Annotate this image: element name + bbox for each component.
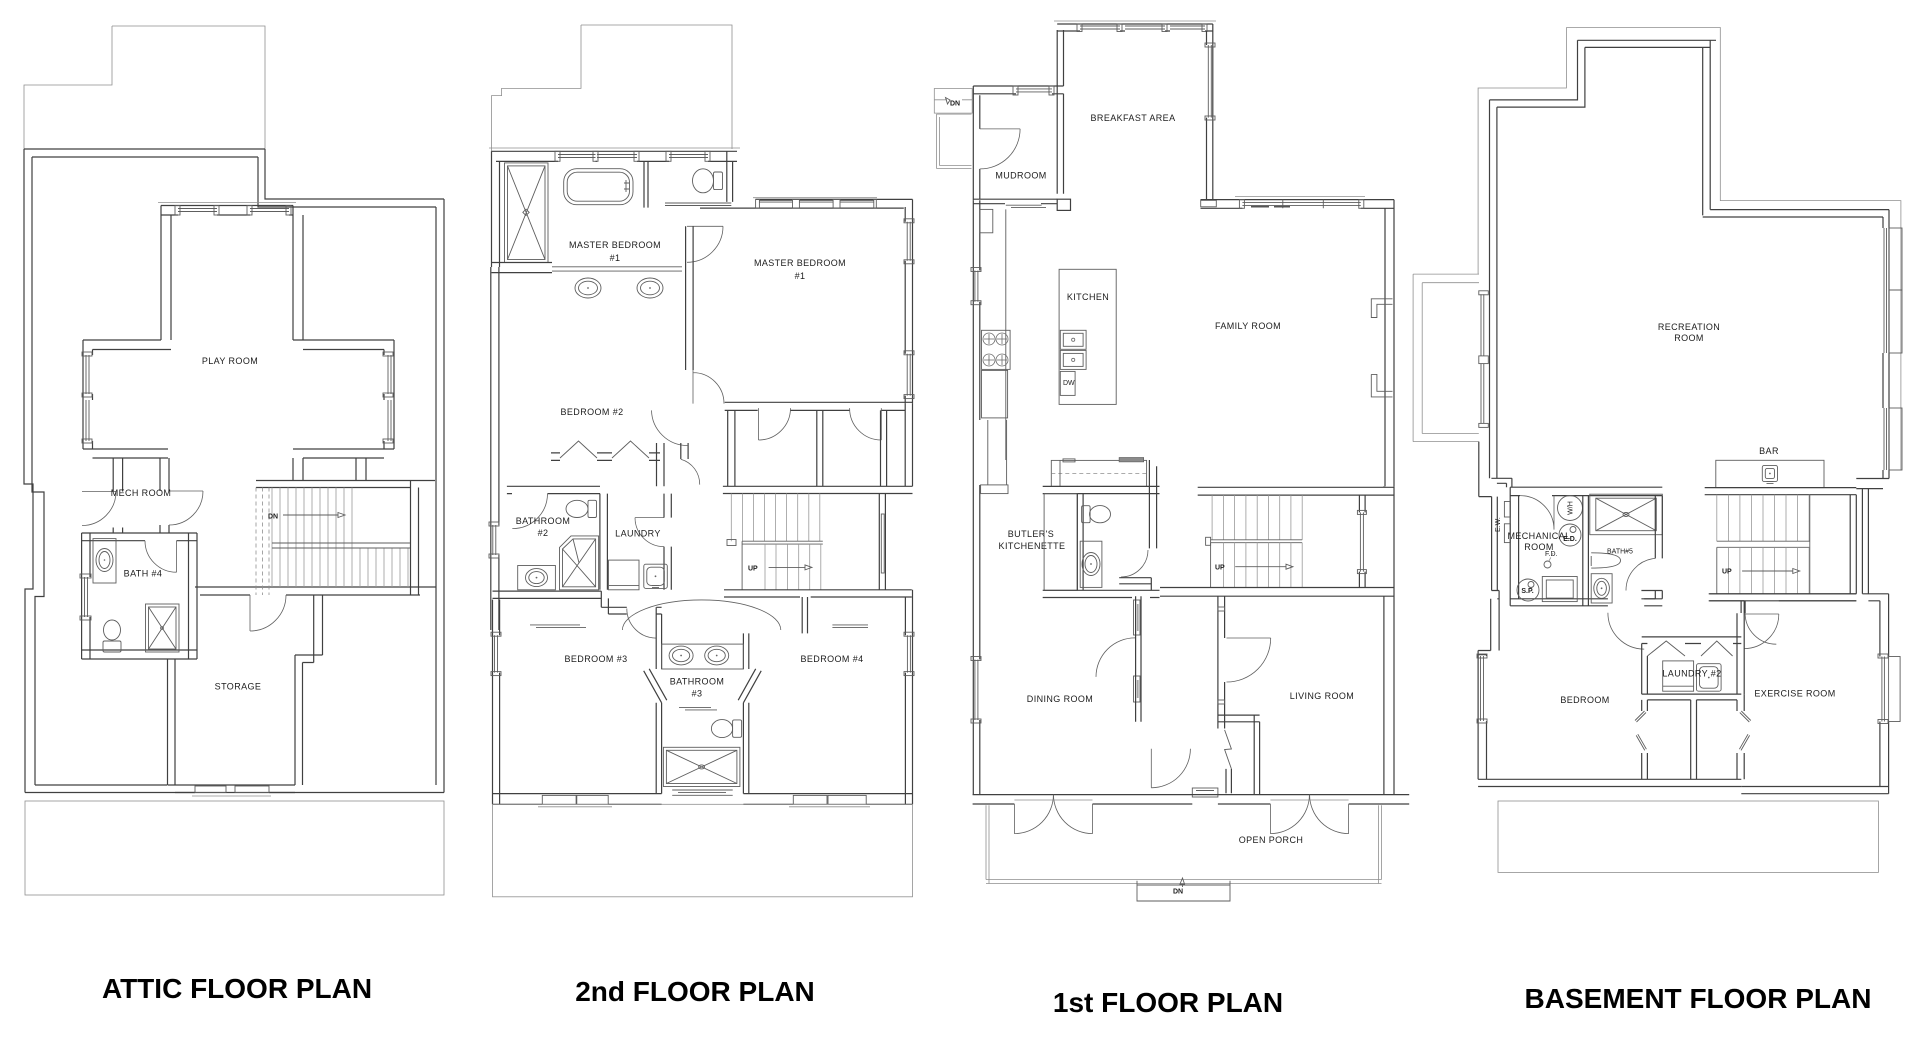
svg-text:DN: DN: [1173, 889, 1183, 896]
svg-text:KITCHENETTE: KITCHENETTE: [999, 541, 1066, 551]
svg-text:RECREATION: RECREATION: [1658, 322, 1720, 332]
svg-text:BEDROOM #2: BEDROOM #2: [560, 407, 623, 417]
svg-text:MASTER BEDROOM: MASTER BEDROOM: [569, 240, 661, 250]
svg-text:STORAGE: STORAGE: [215, 682, 262, 692]
svg-text:1st FLOOR PLAN: 1st FLOOR PLAN: [1053, 987, 1283, 1018]
svg-text:DW: DW: [1063, 380, 1075, 387]
svg-text:MECH ROOM: MECH ROOM: [111, 488, 172, 498]
svg-text:MUDROOM: MUDROOM: [995, 171, 1046, 181]
svg-text:BUTLER'S: BUTLER'S: [1008, 529, 1054, 539]
svg-text:OPEN PORCH: OPEN PORCH: [1239, 835, 1304, 845]
svg-text:S.P.: S.P.: [1521, 588, 1533, 595]
svg-text:PLAY ROOM: PLAY ROOM: [202, 356, 258, 366]
svg-text:2nd FLOOR PLAN: 2nd FLOOR PLAN: [575, 976, 815, 1007]
svg-text:DN: DN: [950, 101, 960, 108]
svg-text:DINING ROOM: DINING ROOM: [1027, 694, 1093, 704]
svg-text:BEDROOM #4: BEDROOM #4: [800, 654, 863, 664]
svg-text:BATHROOM: BATHROOM: [670, 677, 725, 687]
svg-text:BEDROOM: BEDROOM: [1560, 695, 1609, 705]
svg-text:UP: UP: [1215, 565, 1225, 572]
svg-text:#2: #2: [538, 528, 549, 538]
svg-text:F.D.: F.D.: [1545, 551, 1558, 558]
svg-text:FAMILY ROOM: FAMILY ROOM: [1215, 321, 1281, 331]
svg-text:#3: #3: [692, 689, 703, 699]
svg-text:UP: UP: [1722, 569, 1732, 576]
svg-text:LIVING ROOM: LIVING ROOM: [1290, 691, 1354, 701]
svg-text:BATHROOM: BATHROOM: [516, 516, 571, 526]
svg-text:ATTIC FLOOR PLAN: ATTIC FLOOR PLAN: [102, 973, 372, 1004]
svg-text:MECHANICAL: MECHANICAL: [1507, 531, 1570, 541]
svg-text:E.W.: E.W.: [1495, 517, 1502, 532]
svg-text:#1: #1: [795, 271, 806, 281]
svg-text:#1: #1: [610, 253, 621, 263]
svg-text:BAR: BAR: [1759, 446, 1779, 456]
svg-text:EXERCISE ROOM: EXERCISE ROOM: [1754, 689, 1835, 699]
svg-text:LAUNDRY #2: LAUNDRY #2: [1662, 669, 1721, 679]
svg-text:MASTER BEDROOM: MASTER BEDROOM: [754, 258, 846, 268]
svg-text:BASEMENT FLOOR PLAN: BASEMENT FLOOR PLAN: [1525, 983, 1872, 1014]
svg-text:KITCHEN: KITCHEN: [1067, 292, 1109, 302]
svg-text:W/H: W/H: [1568, 501, 1575, 515]
svg-text:LAUNDRY: LAUNDRY: [615, 529, 661, 539]
svg-text:BREAKFAST AREA: BREAKFAST AREA: [1091, 113, 1176, 123]
svg-text:ROOM: ROOM: [1674, 333, 1704, 343]
svg-text:BATH #4: BATH #4: [124, 569, 163, 579]
svg-text:DN: DN: [268, 514, 278, 521]
svg-text:BEDROOM #3: BEDROOM #3: [564, 654, 627, 664]
svg-text:UP: UP: [748, 566, 758, 573]
